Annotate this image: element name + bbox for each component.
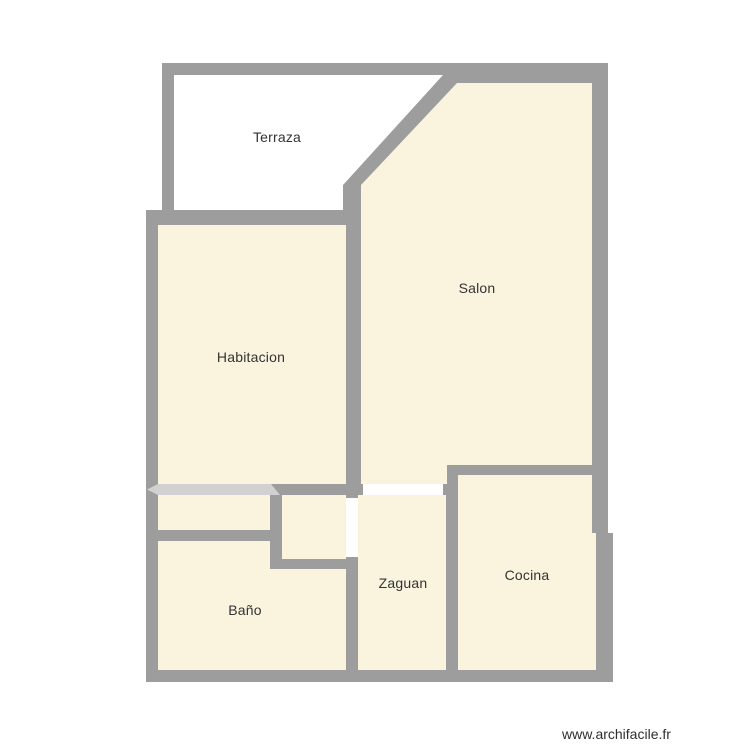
floorplan-canvas: Terraza Salon Habitacion Zaguan Baño Coc… (0, 0, 750, 750)
room-label-cocina: Cocina (505, 567, 550, 583)
habitacion-sliding-door[interactable] (147, 484, 280, 495)
room-label-habitacion: Habitacion (217, 349, 285, 365)
watermark-text: www.archifacile.fr (562, 726, 671, 742)
corridor-strip-shape[interactable] (158, 495, 270, 530)
room-label-terraza: Terraza (253, 129, 301, 145)
closet-shape[interactable] (282, 495, 346, 559)
room-label-bano: Baño (228, 602, 262, 618)
room-label-salon: Salon (459, 280, 496, 296)
salon-zaguan-opening[interactable] (363, 484, 443, 495)
floorplan-drawing (0, 0, 750, 750)
closet-door-opening[interactable] (346, 498, 358, 557)
room-label-zaguan: Zaguan (379, 575, 428, 591)
